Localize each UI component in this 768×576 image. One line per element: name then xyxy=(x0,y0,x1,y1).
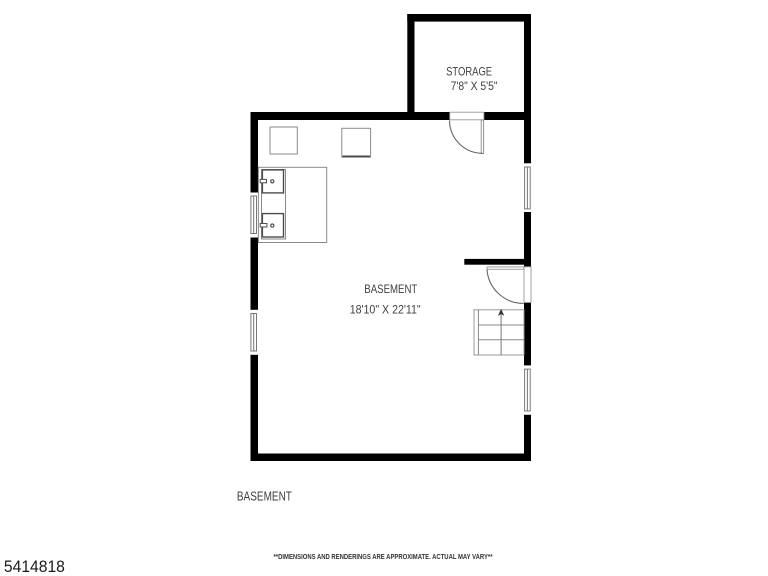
svg-text:BASEMENT: BASEMENT xyxy=(364,283,417,296)
svg-text:7'8" X 5'5": 7'8" X 5'5" xyxy=(451,80,498,93)
svg-text:**DIMENSIONS AND RENDERINGS AR: **DIMENSIONS AND RENDERINGS ARE APPROXIM… xyxy=(274,552,493,561)
svg-text:5414818: 5414818 xyxy=(4,558,65,576)
svg-text:18'10" X 22'11": 18'10" X 22'11" xyxy=(350,303,421,316)
svg-text:STORAGE: STORAGE xyxy=(446,65,492,78)
svg-text:BASEMENT: BASEMENT xyxy=(237,489,292,504)
